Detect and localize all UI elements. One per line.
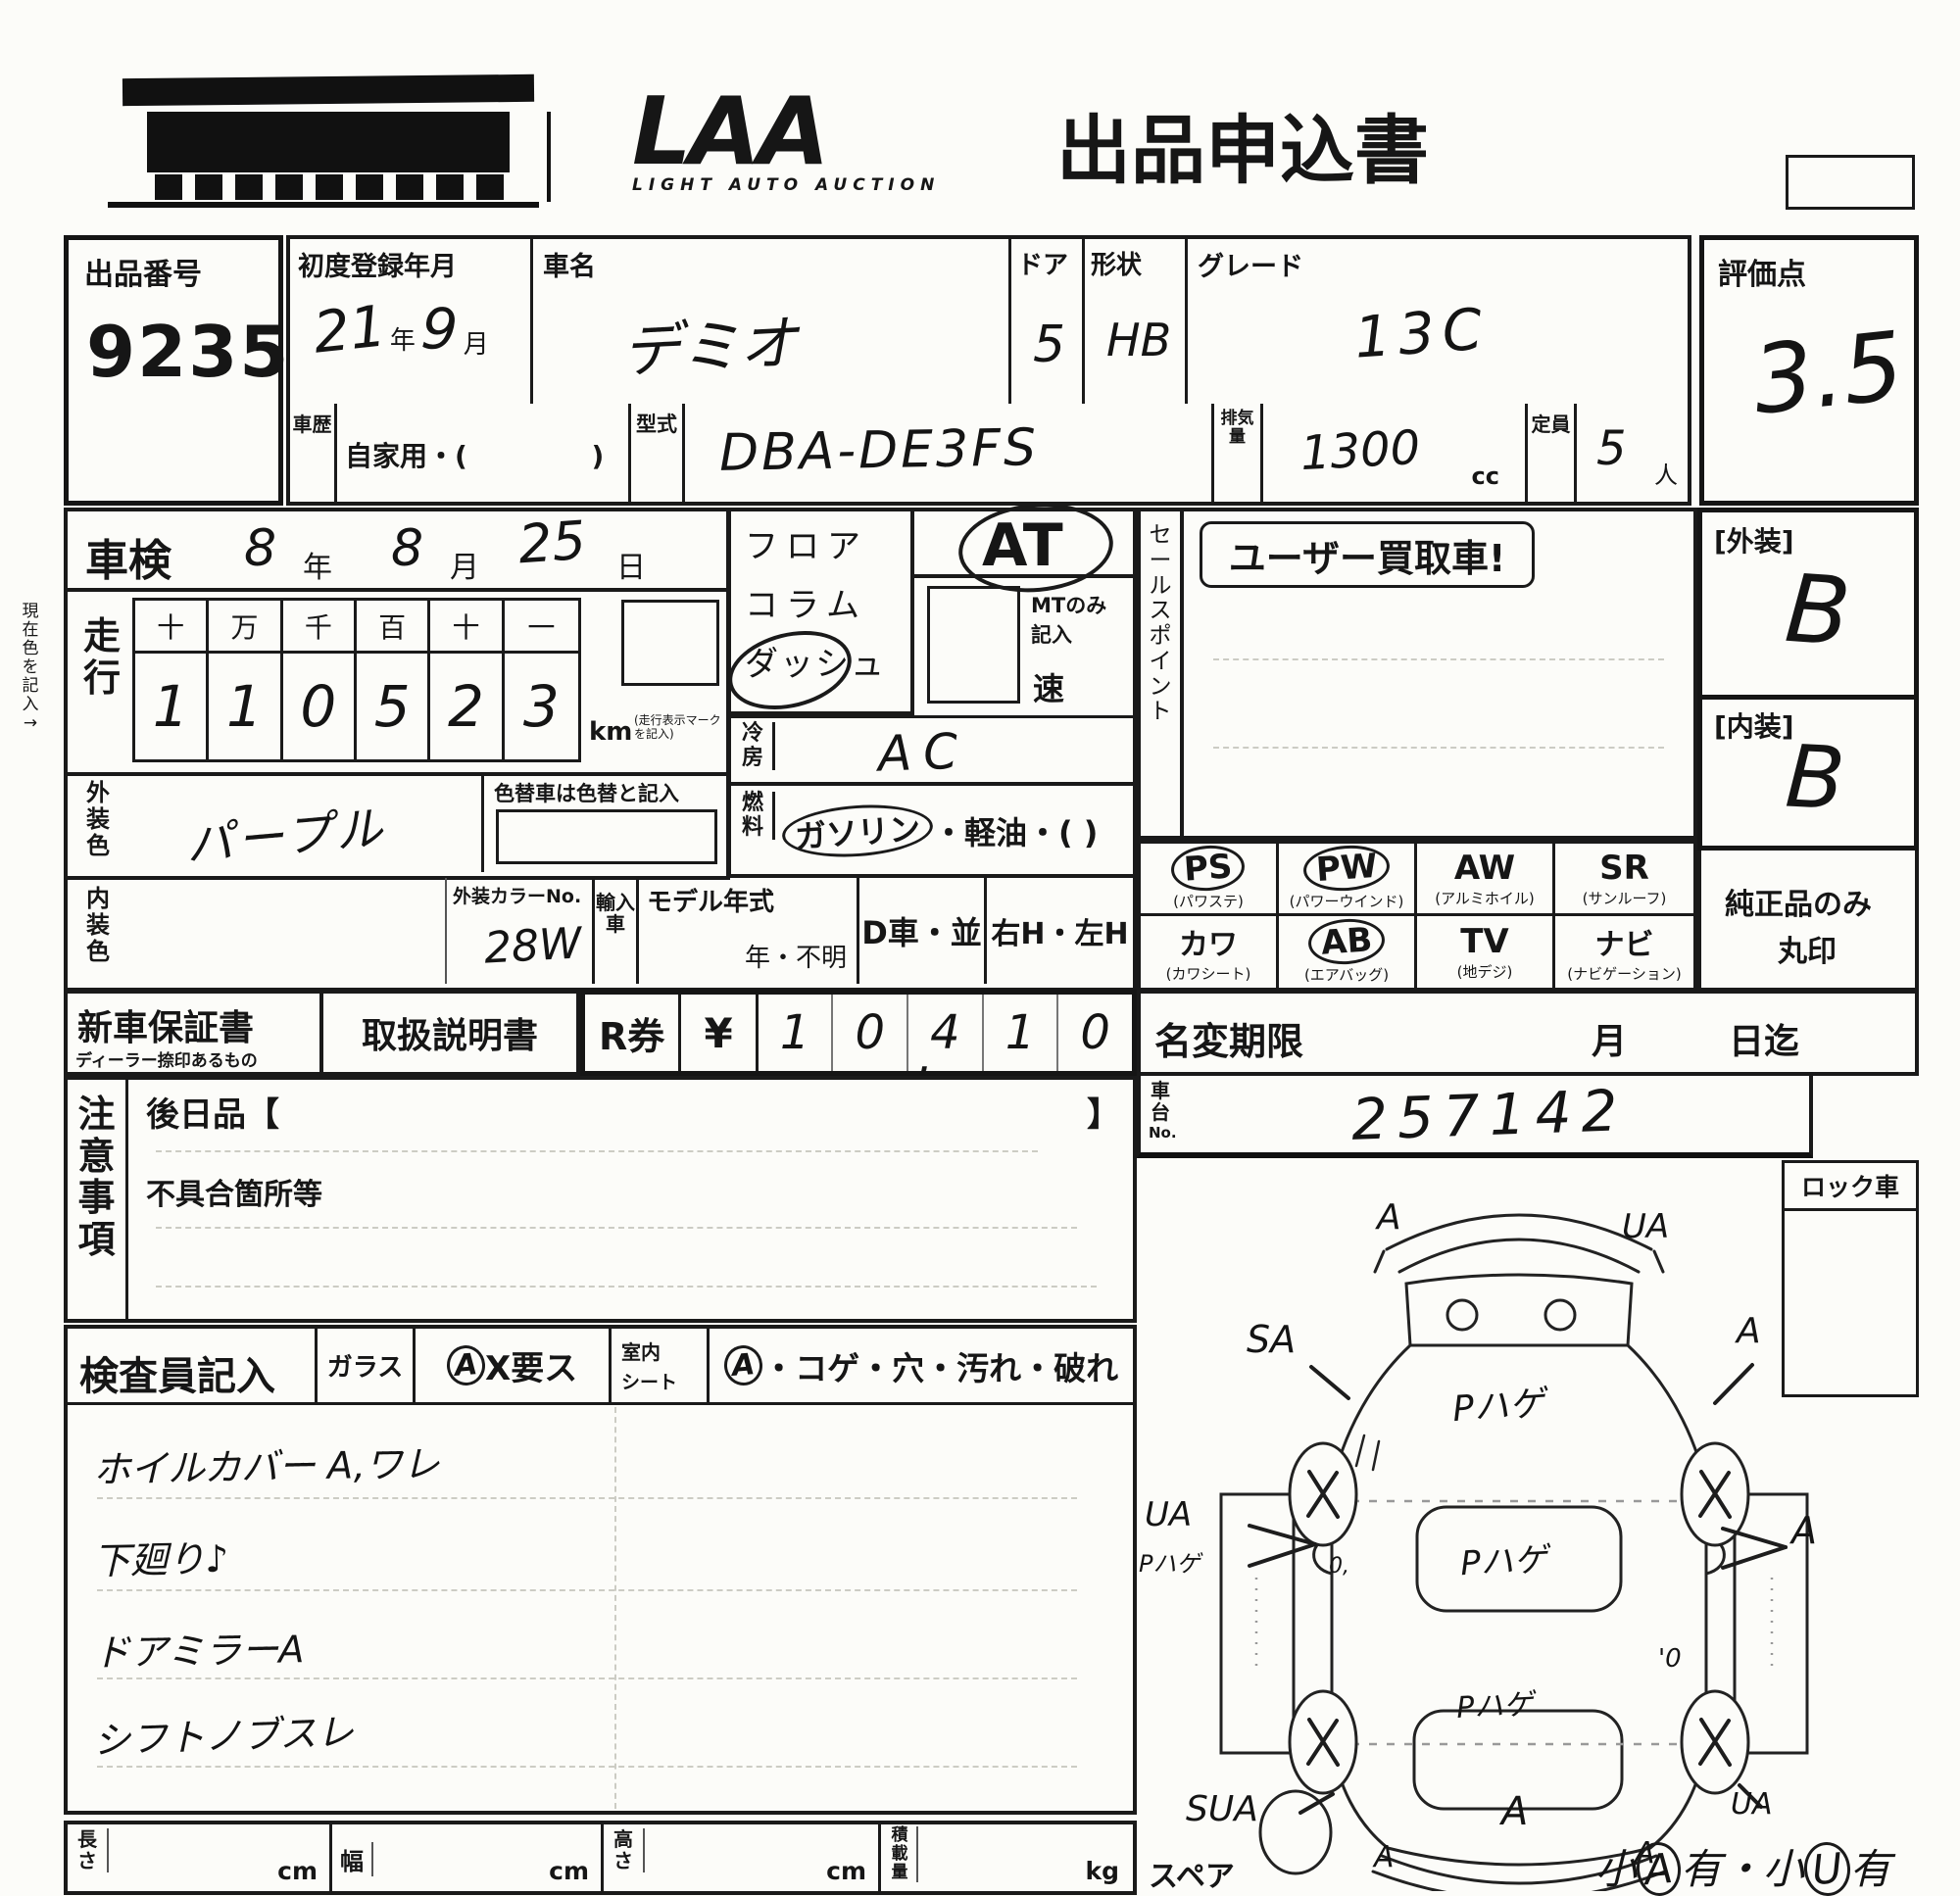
sales-value: ユーザー買取車! <box>1229 528 1506 582</box>
diagram-annotation: A <box>1377 1197 1401 1238</box>
height-label: 高さ <box>612 1828 645 1872</box>
model-label: 型式 <box>631 413 682 437</box>
redacted-squares <box>155 174 508 200</box>
equip-code: カワ <box>1179 920 1238 963</box>
note-b-circled: U <box>1801 1840 1851 1896</box>
fuel-gasoline: ガソリン <box>780 801 934 862</box>
mileage-row: 走行 十 万 千 百 十 一 1 1 0 5 2 3 km (走行表示マーク を… <box>64 588 730 776</box>
spare-label: スペア <box>1149 1852 1235 1895</box>
lot-label: 出品番号 <box>84 250 202 293</box>
d-car-cell: D車・並 <box>859 878 987 984</box>
glass-note-cell: A X要ス <box>416 1329 612 1402</box>
divider <box>614 1407 616 1809</box>
laa-logo: LAA LIGHT AUTO AUCTION <box>632 86 940 195</box>
shaken-row: 車検 8 年 8 月 25 日 <box>64 508 730 592</box>
model-label-cell: 型式 <box>631 404 685 502</box>
load-unit: kg <box>1085 1857 1119 1885</box>
seat-label1: 室内 <box>621 1337 661 1365</box>
inspector-title-cell: 検査員記入 <box>68 1329 318 1402</box>
glass-label: ガラス <box>327 1347 403 1384</box>
glass-cell: ガラス <box>318 1329 416 1402</box>
shaken-year-unit: 年 <box>303 543 332 586</box>
reg-year-unit: 年 <box>390 320 416 357</box>
equip-cell-ps: PS (パワステ) <box>1141 844 1279 916</box>
height-unit: cm <box>826 1857 866 1885</box>
seat-label2: シート <box>621 1368 677 1394</box>
diagram-annotation: UA <box>1731 1787 1772 1822</box>
seat-cell: 室内 シート <box>612 1329 710 1402</box>
equip-code: PS <box>1170 843 1247 893</box>
grade-cell: グレード 13C <box>1188 239 1688 404</box>
margin-note: 現在色を記入→ <box>18 603 43 733</box>
caution-defect: 不具合箇所等 <box>146 1170 322 1213</box>
disp-unit: cc <box>1472 462 1499 490</box>
genuine-note1: 純正品のみ <box>1725 880 1872 923</box>
divider <box>97 1766 1077 1768</box>
reg-cell: 初度登録年月 21 年 9 月 <box>290 239 533 404</box>
width-cell: 幅 cm <box>332 1824 604 1891</box>
disp-label: 排気量 <box>1214 410 1260 447</box>
mileage-header: 万 <box>209 601 282 654</box>
color-no-value: 28W <box>483 918 583 973</box>
laa-logo-text: LAA <box>632 86 940 179</box>
diagram-annotation: A <box>1791 1509 1817 1552</box>
chassis-value: 257142 <box>1350 1077 1629 1153</box>
caution-label-col: 注意事項 <box>68 1080 128 1319</box>
model-cell: DBA-DE3FS <box>685 404 1214 502</box>
shaken-day: 25 <box>516 510 588 576</box>
fuel-rest: ・軽油・( ) <box>933 814 1098 851</box>
mt-box <box>927 586 1020 704</box>
corner-box <box>1786 155 1915 210</box>
warranty-sub: ディーラー捺印あるもの <box>75 1046 258 1071</box>
height-cell: 高さ cm <box>604 1824 881 1891</box>
mileage-mark-box <box>621 600 719 686</box>
chassis-row: 車台 No. 257142 <box>1137 1076 1813 1158</box>
mt-note2: 記入 <box>1031 619 1072 649</box>
auction-sheet: LAA LIGHT AUTO AUCTION 出品申込書 出品番号 9235 初… <box>0 0 1960 1896</box>
car-diagram <box>1205 1156 1823 1891</box>
history-label-cell: 車歴 <box>290 404 337 502</box>
mileage-digit: 1 <box>209 654 282 759</box>
cap-label: 定員 <box>1528 413 1574 435</box>
sales-content: ユーザー買取車! <box>1184 508 1697 840</box>
model-year-cell: モデル年式 年・不明 <box>639 878 859 984</box>
rticket-digit: 1 <box>759 995 834 1071</box>
inspector-note: 下廻り♪ <box>93 1529 229 1584</box>
mileage-digit: 0 <box>283 654 357 759</box>
grade-label: グレード <box>1198 245 1303 283</box>
page-title: 出品申込書 <box>1056 90 1429 198</box>
reg-month: 9 <box>419 295 461 364</box>
int-grade-box: [内装] B <box>1697 700 1919 851</box>
diagram-annotation: 0, <box>1329 1554 1349 1579</box>
fuel-row: 燃料 ガソリン・軽油・( ) <box>727 784 1137 878</box>
shaken-day-unit: 日 <box>616 543 646 586</box>
rticket-digit: 1 <box>984 995 1059 1071</box>
cap-cell: 5 人 <box>1577 404 1688 502</box>
rticket-digit: 0 <box>833 995 908 1071</box>
equip-code: PW <box>1301 843 1391 894</box>
cool-row: 冷房 AC <box>727 715 1137 786</box>
diagram-area: A UA SA A Pハゲ UA Pハゲ A Pハゲ Pハゲ 0, '0 SUA… <box>1137 1156 1919 1896</box>
mt-note1: MTのみ <box>1031 590 1106 619</box>
divider <box>156 1150 1038 1152</box>
divider <box>97 1589 1077 1591</box>
trans-line1: フロア <box>745 519 868 567</box>
car-name-label: 車名 <box>543 245 596 283</box>
door-cell: ドア 5 <box>1011 239 1085 404</box>
sales-label: セールスポイント <box>1141 523 1180 725</box>
int-color-label: 内装色 <box>83 886 113 965</box>
door-label: ドア <box>1017 245 1068 281</box>
warranty-cell: 新車保証書 ディーラー捺印あるもの <box>64 990 323 1076</box>
car-name-value: デミオ <box>619 295 800 389</box>
redacted-baseline <box>108 202 539 208</box>
equip-cell-pw: PW (パワーウインド) <box>1279 844 1417 916</box>
equip-name: (ナビゲーション) <box>1567 963 1681 984</box>
color-no-label: 外装カラーNo. <box>453 882 581 908</box>
note-p2: 有・小 <box>1681 1845 1804 1893</box>
rticket-comma: , <box>918 1030 933 1083</box>
divider <box>156 1227 1077 1229</box>
caution-label: 注意事項 <box>75 1094 119 1260</box>
cap-unit: 人 <box>1654 456 1678 490</box>
laa-logo-sub: LIGHT AUTO AUCTION <box>632 175 940 195</box>
chassis-label-no: No. <box>1149 1124 1177 1142</box>
disp-cell: 1300 cc <box>1263 404 1528 502</box>
width-unit: cm <box>549 1857 589 1885</box>
diagram-annotation: Pハゲ <box>1450 1375 1545 1432</box>
equip-cell-ab: AB (エアバッグ) <box>1279 916 1417 989</box>
equip-name: (サンルーフ) <box>1583 888 1667 908</box>
shape-cell: 形状 HB <box>1085 239 1188 404</box>
ext-color-row: 外装色 パープル 色替車は色替と記入 <box>64 774 730 880</box>
equip-cell-sr: SR (サンルーフ) <box>1555 844 1693 916</box>
redacted-logo <box>108 71 559 208</box>
reg-month-unit: 月 <box>464 324 489 361</box>
shaken-year: 8 <box>244 519 276 578</box>
int-grade-value: B <box>1783 725 1847 829</box>
length-cell: 長さ cm <box>68 1824 332 1891</box>
namechange-label: 名変期限 <box>1154 1011 1303 1065</box>
model-value: DBA-DE3FS <box>719 418 1040 483</box>
mileage-digit: 2 <box>430 654 504 759</box>
equip-name: (パワステ) <box>1173 891 1244 911</box>
grade-value: 13C <box>1352 295 1493 370</box>
equip-cell-aw: AW (アルミホイル) <box>1417 844 1555 916</box>
divider <box>97 1677 1077 1679</box>
diagram-annotation: A <box>1737 1311 1761 1351</box>
equip-cell-tv: TV (地デジ) <box>1417 916 1555 989</box>
trans-line2: コラム <box>745 578 867 626</box>
color-no-cell: 外装カラーNo. 28W <box>445 878 592 984</box>
equip-name: (カワシート) <box>1166 963 1251 984</box>
mileage-header: 千 <box>283 601 357 654</box>
shape-label: 形状 <box>1091 245 1142 281</box>
equip-cell-navi: ナビ (ナビゲーション) <box>1555 916 1693 989</box>
mileage-header: 十 <box>430 601 504 654</box>
diagram-annotation: Pハゲ <box>1459 1532 1548 1585</box>
note-p3: 有 <box>1850 1845 1891 1893</box>
sales-label-col: セールスポイント <box>1137 508 1184 840</box>
inspector-note: ドアミラーA <box>93 1619 305 1677</box>
diagram-annotation: SUA <box>1186 1789 1258 1829</box>
load-label: 積載量 <box>889 1826 918 1882</box>
equip-name: (パワーウインド) <box>1290 891 1404 911</box>
ext-grade-value: B <box>1782 554 1854 667</box>
diagram-annotation: Pハゲ <box>1139 1544 1200 1579</box>
rticket-label: R券 <box>585 995 681 1071</box>
vehicle-grid: 初度登録年月 21 年 9 月 車名 デミオ ドア 5 形状 HB グレード 1… <box>286 235 1691 506</box>
mileage-digit: 5 <box>357 654 430 759</box>
mileage-digit: 3 <box>505 654 578 759</box>
ext-grade-label: [外装] <box>1714 520 1794 559</box>
dash-circle-mark <box>720 619 860 722</box>
diagram-annotation: UA <box>1622 1207 1669 1246</box>
diagram-bottom-note: 小A有・小U有 <box>1595 1836 1891 1896</box>
lot-number: 9235 <box>86 311 290 393</box>
width-label: 幅 <box>340 1842 373 1876</box>
handle-cell: 右H・左H <box>987 878 1133 984</box>
load-cell: 積載量 kg <box>881 1824 1133 1891</box>
equip-code: TV <box>1460 922 1509 961</box>
ext-color-value: パープル <box>182 789 388 875</box>
diagram-annotation: A <box>1501 1789 1528 1834</box>
equip-name: (地デジ) <box>1457 961 1513 982</box>
caution-box: 注意事項 後日品【 】 不具合箇所等 <box>64 1076 1137 1323</box>
equip-code: AB <box>1306 916 1386 966</box>
int-color-row: 内装色 外装カラーNo. 28W 輸入車 モデル年式 年・不明 D車・並 右H・… <box>64 878 1137 992</box>
sales-value-box: ユーザー買取車! <box>1200 521 1535 588</box>
inspector-note: シフトノブスレ <box>92 1701 355 1764</box>
shaken-label: 車検 <box>85 525 171 588</box>
seat-note: ・コゲ・穴・汚れ・破れ <box>762 1342 1118 1389</box>
history-cell: 自家用・( ) <box>337 404 631 502</box>
manual-label: 取扱説明書 <box>362 1007 538 1058</box>
inspector-note: ホイルカバー A,ワレ <box>93 1434 441 1493</box>
genuine-box: 純正品のみ 丸印 <box>1697 851 1919 992</box>
inspector-title: 検査員記入 <box>79 1344 275 1401</box>
seat-note-cell: A ・コゲ・穴・汚れ・破れ <box>710 1329 1133 1402</box>
redacted-block <box>147 112 510 172</box>
diagram-annotation: SA <box>1247 1318 1296 1361</box>
length-label: 長さ <box>75 1828 109 1872</box>
score-value: 3.5 <box>1748 311 1909 435</box>
length-unit: cm <box>277 1857 318 1885</box>
namechange-day: 日迄 <box>1729 1013 1799 1064</box>
shaken-month-unit: 月 <box>450 543 479 586</box>
cool-label: 冷房 <box>739 722 775 770</box>
manual-cell: 取扱説明書 <box>323 990 580 1076</box>
note-a-circled: A <box>1635 1840 1683 1896</box>
model-year-note: 年・不明 <box>745 938 847 974</box>
mileage-grid: 十 万 千 百 十 一 1 1 0 5 2 3 <box>132 598 581 762</box>
mt-cell: MTのみ 記入 速 <box>911 578 1137 715</box>
import-label-cell: 輸入車 <box>592 878 639 984</box>
reg-label: 初度登録年月 <box>298 245 457 283</box>
shape-value: HB <box>1106 314 1171 366</box>
rticket-box: R券 ¥ 1 0 4 1 0 , <box>580 990 1137 1076</box>
equip-code: SR <box>1599 849 1649 888</box>
cool-value: AC <box>877 722 970 782</box>
model-year-label: モデル年式 <box>647 882 774 918</box>
seat-mark: A <box>722 1343 764 1386</box>
divider <box>1213 747 1664 749</box>
color-change-subcell: 色替車は色替と記入 <box>481 774 730 872</box>
disp-label-cell: 排気量 <box>1214 404 1263 502</box>
mileage-header: 百 <box>357 601 430 654</box>
note-p1: 小 <box>1595 1845 1637 1893</box>
score-box: 評価点 3.5 <box>1699 235 1919 506</box>
score-label: 評価点 <box>1718 250 1806 293</box>
genuine-note2: 丸印 <box>1778 927 1837 970</box>
chassis-label: 車台 No. <box>1149 1080 1177 1142</box>
warranty-label: 新車保証書 <box>77 999 254 1050</box>
mileage-note: (走行表示マーク を記入) <box>634 713 728 742</box>
mileage-unit: km <box>589 717 632 747</box>
diagram-annotation: A <box>1374 1840 1395 1874</box>
fuel-label: 燃料 <box>739 792 775 840</box>
diagram-annotation: '0 <box>1658 1644 1682 1674</box>
mt-speed: 速 <box>1033 664 1064 709</box>
door-value: 5 <box>1033 316 1065 374</box>
mileage-header: 十 <box>135 601 209 654</box>
mileage-header: 一 <box>505 601 578 654</box>
history-value: 自家用・( ) <box>345 435 604 474</box>
rticket-digit: 0 <box>1058 995 1132 1071</box>
equip-name: (アルミホイル) <box>1435 888 1535 908</box>
history-label: 車歴 <box>290 413 334 435</box>
dims-row: 長さ cm 幅 cm 高さ cm 積載量 kg <box>64 1821 1137 1895</box>
chassis-label-kanji: 車台 <box>1149 1080 1172 1124</box>
ext-grade-box: [外装] B <box>1697 508 1919 700</box>
redacted-edge <box>547 112 551 202</box>
int-color-value <box>128 878 445 984</box>
ext-color-label: 外装色 <box>83 780 113 859</box>
caution-later-close: 】 <box>1087 1088 1120 1136</box>
rticket-yen: ¥ <box>681 995 759 1071</box>
cap-label-cell: 定員 <box>1528 404 1577 502</box>
diagram-annotation: UA <box>1145 1495 1192 1534</box>
at-cell: AT <box>911 508 1137 578</box>
mileage-label: 走行 <box>81 615 122 699</box>
equip-name: (エアバッグ) <box>1304 964 1389 985</box>
equip-cell-kawa: カワ (カワシート) <box>1141 916 1279 989</box>
trans-cell: フロア コラム ダッシュ <box>727 508 914 715</box>
namechange-row: 名変期限 月 日迄 <box>1137 990 1919 1076</box>
color-change-note: 色替車は色替と記入 <box>494 778 679 807</box>
divider <box>156 1286 1097 1288</box>
import-label: 輸入車 <box>595 892 636 936</box>
car-name-cell: 車名 デミオ <box>533 239 1011 404</box>
lot-box: 出品番号 9235 <box>64 235 283 506</box>
disp-value: 1300 <box>1299 420 1422 481</box>
reg-year: 21 <box>311 292 390 365</box>
diagram-annotation: Pハゲ <box>1455 1679 1534 1726</box>
divider <box>1213 658 1664 660</box>
glass-mark: A <box>445 1343 487 1386</box>
cap-value: 5 <box>1596 421 1627 476</box>
equipment-grid: PS (パワステ) PW (パワーウインド) AW (アルミホイル) SR (サ… <box>1137 840 1697 992</box>
caution-later: 後日品【 <box>146 1088 279 1136</box>
divider <box>97 1497 1077 1499</box>
inspector-header: 検査員記入 ガラス A X要ス 室内 シート A ・コゲ・穴・汚れ・破れ <box>68 1329 1133 1405</box>
color-change-box <box>496 809 717 864</box>
inspector-box: 検査員記入 ガラス A X要ス 室内 シート A ・コゲ・穴・汚れ・破れ ホイル… <box>64 1325 1137 1815</box>
redacted-bar <box>122 74 534 106</box>
int-grade-label: [内装] <box>1714 705 1794 745</box>
mileage-digit: 1 <box>135 654 209 759</box>
equip-code: ナビ <box>1595 920 1654 963</box>
shaken-month: 8 <box>391 519 423 578</box>
glass-note: X要ス <box>485 1341 577 1389</box>
equip-code: AW <box>1454 849 1515 888</box>
namechange-month: 月 <box>1592 1013 1627 1064</box>
